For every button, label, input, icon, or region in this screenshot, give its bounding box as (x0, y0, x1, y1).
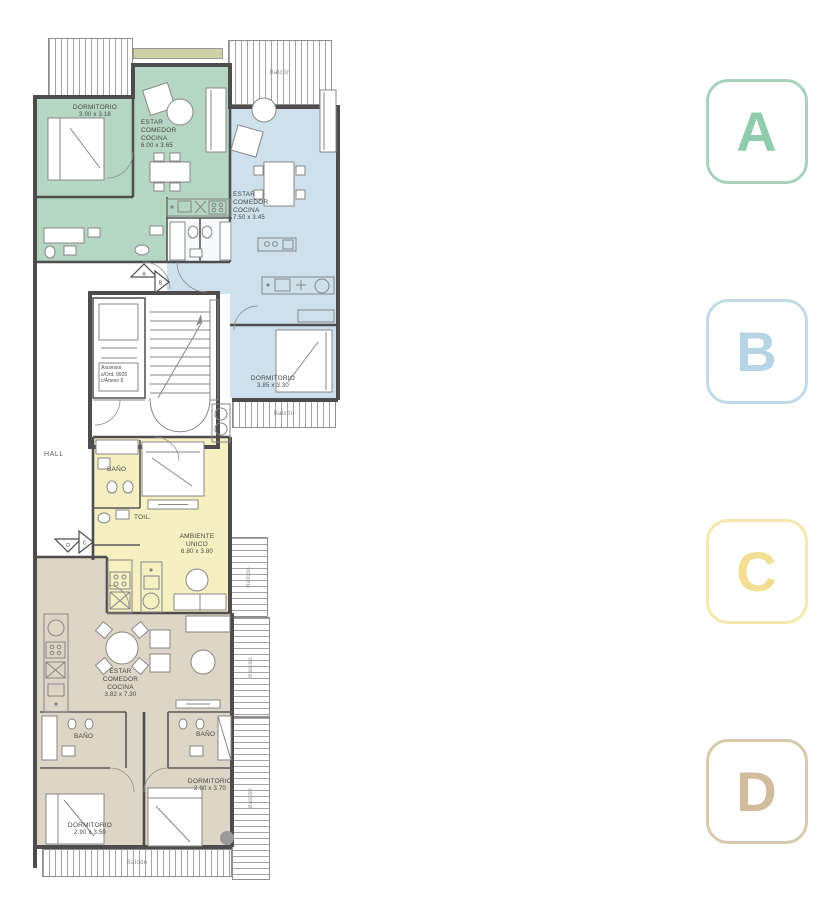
entry-marker-c: C (83, 541, 87, 547)
entry-markers: A B D C (55, 264, 169, 553)
label-hall: HALL (44, 451, 64, 458)
label-d-bedroom2: DORMITORIO 2.90 x 3.50 (55, 822, 125, 838)
furniture-unit-d (42, 614, 234, 846)
label-b-living: ESTAR COMEDOR COCINA 7.50 x 3.45 (233, 191, 268, 223)
label-a-living: ESTAR COMEDOR COCINA 6.00 x 3.65 (141, 119, 176, 151)
label-d-bath1: BAÑO (74, 733, 93, 741)
plan-linework: A B D C (0, 0, 828, 907)
label-b-bedroom: DORMITORIO 3.85 x 3.30 (233, 375, 313, 391)
furniture-unit-b (231, 90, 336, 392)
label-c-main: AMBIENTE UNICO 6.80 x 3.80 (162, 533, 232, 557)
label-c-toilet: TOIL. (134, 514, 151, 522)
entry-marker-d: D (66, 543, 70, 549)
floorplan-page: Balcón Balcón Balcón Balcón Balcón Balcó… (0, 0, 828, 907)
label-a-bedroom: DORMITORIO 3.00 x 3.18 (55, 104, 135, 120)
label-elevator: Ascensor s/Ord. 9926 c/Anexo 6 (101, 365, 127, 385)
label-d-bedroom1: DORMITORIO 2.90 x 3.70 (175, 778, 245, 794)
label-c-bath: BAÑO (107, 466, 126, 474)
label-d-bath2: BAÑO (196, 731, 215, 739)
label-d-living: ESTAR COMEDOR COCINA 3.82 x 7.30 (88, 668, 153, 700)
